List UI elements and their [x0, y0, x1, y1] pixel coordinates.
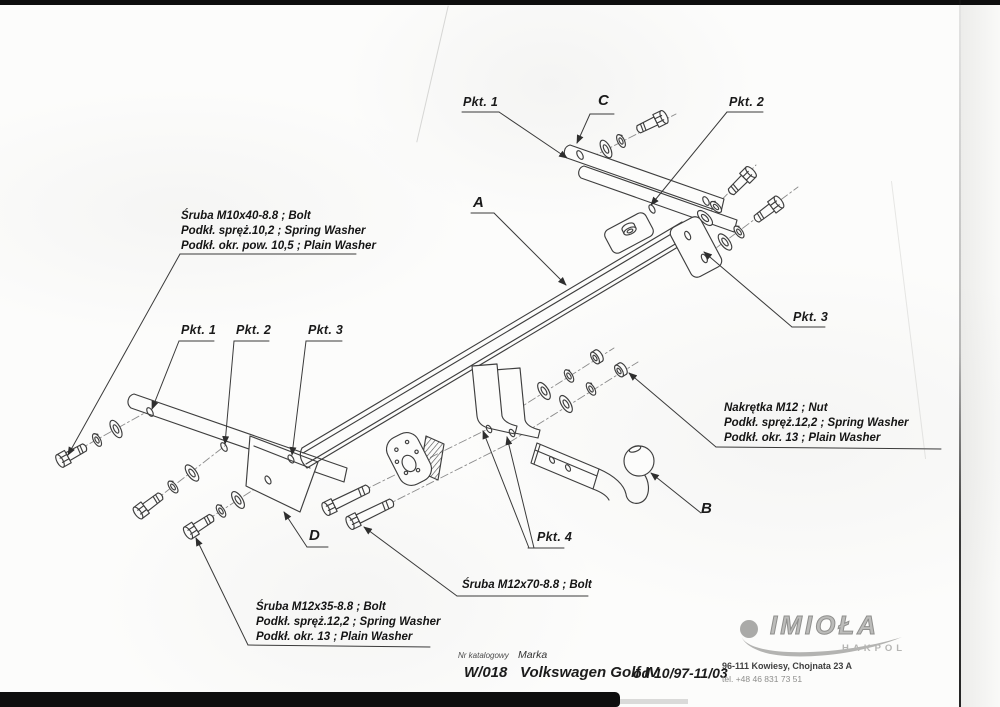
callout-part-b: B	[701, 500, 712, 517]
note-line: Nakrętka M12 ; Nut	[724, 401, 908, 416]
scan-artifact-right-shade	[961, 0, 1000, 707]
note-bolt-m12x70: Śruba M12x70-8.8 ; Bolt	[462, 578, 592, 593]
scan-artifact-bottom-fade	[618, 699, 688, 704]
note-line: Podkł. okr. 13 ; Plain Washer	[256, 630, 440, 645]
bolt-m10x40	[725, 165, 758, 198]
note-line: Podkł. okr. 13 ; Plain Washer	[724, 431, 908, 446]
model-years: od 10/97-11/03	[633, 665, 728, 681]
brand-logo-subtext: HAKPOL	[842, 643, 906, 654]
callout-pkt1-top: Pkt. 1	[463, 95, 498, 109]
plain-washer	[183, 463, 202, 484]
spring-washer	[615, 133, 628, 149]
callout-part-c: C	[598, 92, 609, 109]
note-bolt-m12x35: Śruba M12x35-8.8 ; Bolt Podkł. spręż.12,…	[256, 600, 440, 645]
note-line: Podkł. okr. pow. 10,5 ; Plain Washer	[181, 239, 376, 254]
callout-part-a: A	[473, 194, 484, 211]
plain-washer	[557, 394, 575, 415]
note-line: Śruba M10x40-8.8 ; Bolt	[181, 209, 376, 224]
scan-artifact-top-edge	[0, 0, 1000, 5]
scan-artifact-right-edge-line	[959, 0, 961, 707]
callout-pkt2-left: Pkt. 2	[236, 323, 271, 337]
towbar-exploded-diagram	[0, 0, 1000, 707]
socket-plate	[382, 428, 444, 490]
spring-washer	[166, 479, 180, 494]
callout-pkt4: Pkt. 4	[537, 530, 572, 544]
catalog-number-value: W/018	[464, 664, 507, 681]
bolt-m12x35	[54, 440, 89, 468]
callout-pkt3-left: Pkt. 3	[308, 323, 343, 337]
scan-artifact-bottom-edge	[0, 692, 620, 707]
callout-part-d: D	[309, 527, 320, 544]
ball-mount	[531, 443, 654, 503]
note-line: Śruba M12x70-8.8 ; Bolt	[462, 578, 592, 593]
note-nut-m12: Nakrętka M12 ; Nut Podkł. spręż.12,2 ; S…	[724, 401, 908, 446]
brand-phone: tel. +48 46 831 73 51	[722, 674, 802, 684]
note-line: Podkł. spręż.12,2 ; Spring Washer	[724, 416, 908, 431]
callout-pkt1-left: Pkt. 1	[181, 323, 216, 337]
crossbar-beam	[300, 222, 688, 468]
plain-washer	[229, 490, 247, 511]
spring-washer	[214, 503, 227, 518]
note-bolt-m10: Śruba M10x40-8.8 ; Bolt Podkł. spręż.10,…	[181, 209, 376, 254]
bolt-m12x35	[182, 511, 217, 541]
catalog-number-label: Nr katalogowy	[458, 651, 509, 660]
scanned-page: Pkt. 1 C Pkt. 2 A Pkt. 3 Pkt. 1 Pkt. 2 P…	[0, 0, 1000, 707]
spring-washer	[562, 368, 575, 384]
nut-washer-row-2	[557, 361, 629, 414]
spring-washer	[91, 432, 104, 448]
fastener-set-top	[598, 109, 670, 159]
note-line: Podkł. spręż.12,2 ; Spring Washer	[256, 615, 440, 630]
bolt-m12x35	[131, 490, 166, 521]
bolt-m10x40	[751, 195, 786, 226]
note-line: Śruba M12x35-8.8 ; Bolt	[256, 600, 440, 615]
plain-washer	[107, 418, 124, 439]
plain-washer	[535, 381, 553, 402]
brand-address: 96-111 Kowiesy, Chojnata 23 A	[722, 661, 852, 671]
make-label: Marka	[518, 649, 547, 661]
callout-pkt3-right: Pkt. 3	[793, 310, 828, 324]
callout-pkt2-top: Pkt. 2	[729, 95, 764, 109]
bolt-m10x40	[634, 109, 670, 136]
plain-washer	[716, 232, 735, 253]
fastener-set-left-1	[54, 418, 125, 468]
brand-logo-text: IMIOŁA	[770, 610, 879, 641]
nut-m12	[589, 348, 605, 365]
note-line: Podkł. spręż.10,2 ; Spring Washer	[181, 224, 376, 239]
